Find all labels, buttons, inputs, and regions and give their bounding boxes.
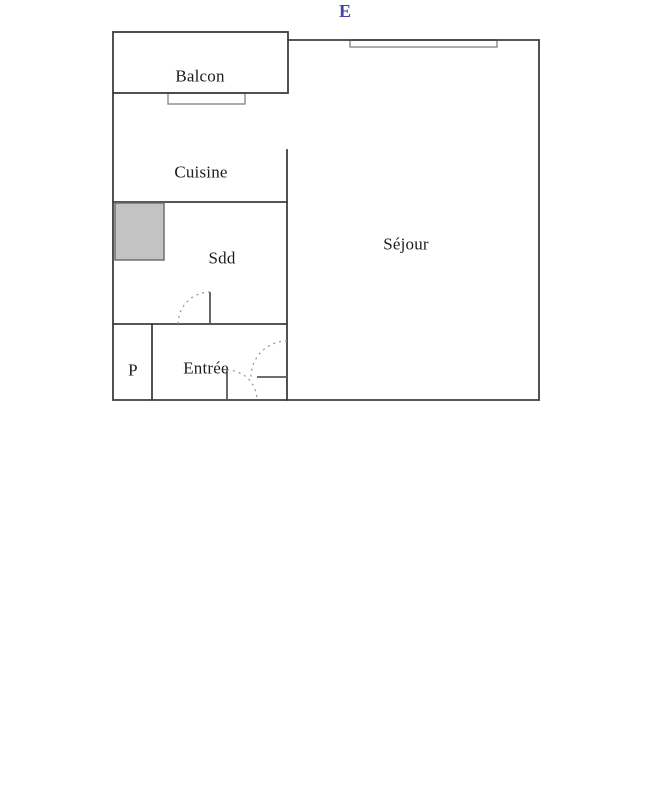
balcony-door-window [168,93,245,104]
sdd-door-swing [178,292,210,324]
floor-plan: E Balcon Cuisine Sdd Séjour P Entrée [0,0,651,800]
door-leaves [210,292,287,400]
windows [168,40,497,104]
sejour-door-swing [251,341,287,377]
sejour-window [350,40,497,47]
door-swings [178,292,287,400]
floor-plan-canvas [0,0,651,800]
balcony-outline [113,32,288,93]
shower-tray [115,203,164,260]
walls [113,32,539,400]
entry-door-swing [227,370,257,400]
